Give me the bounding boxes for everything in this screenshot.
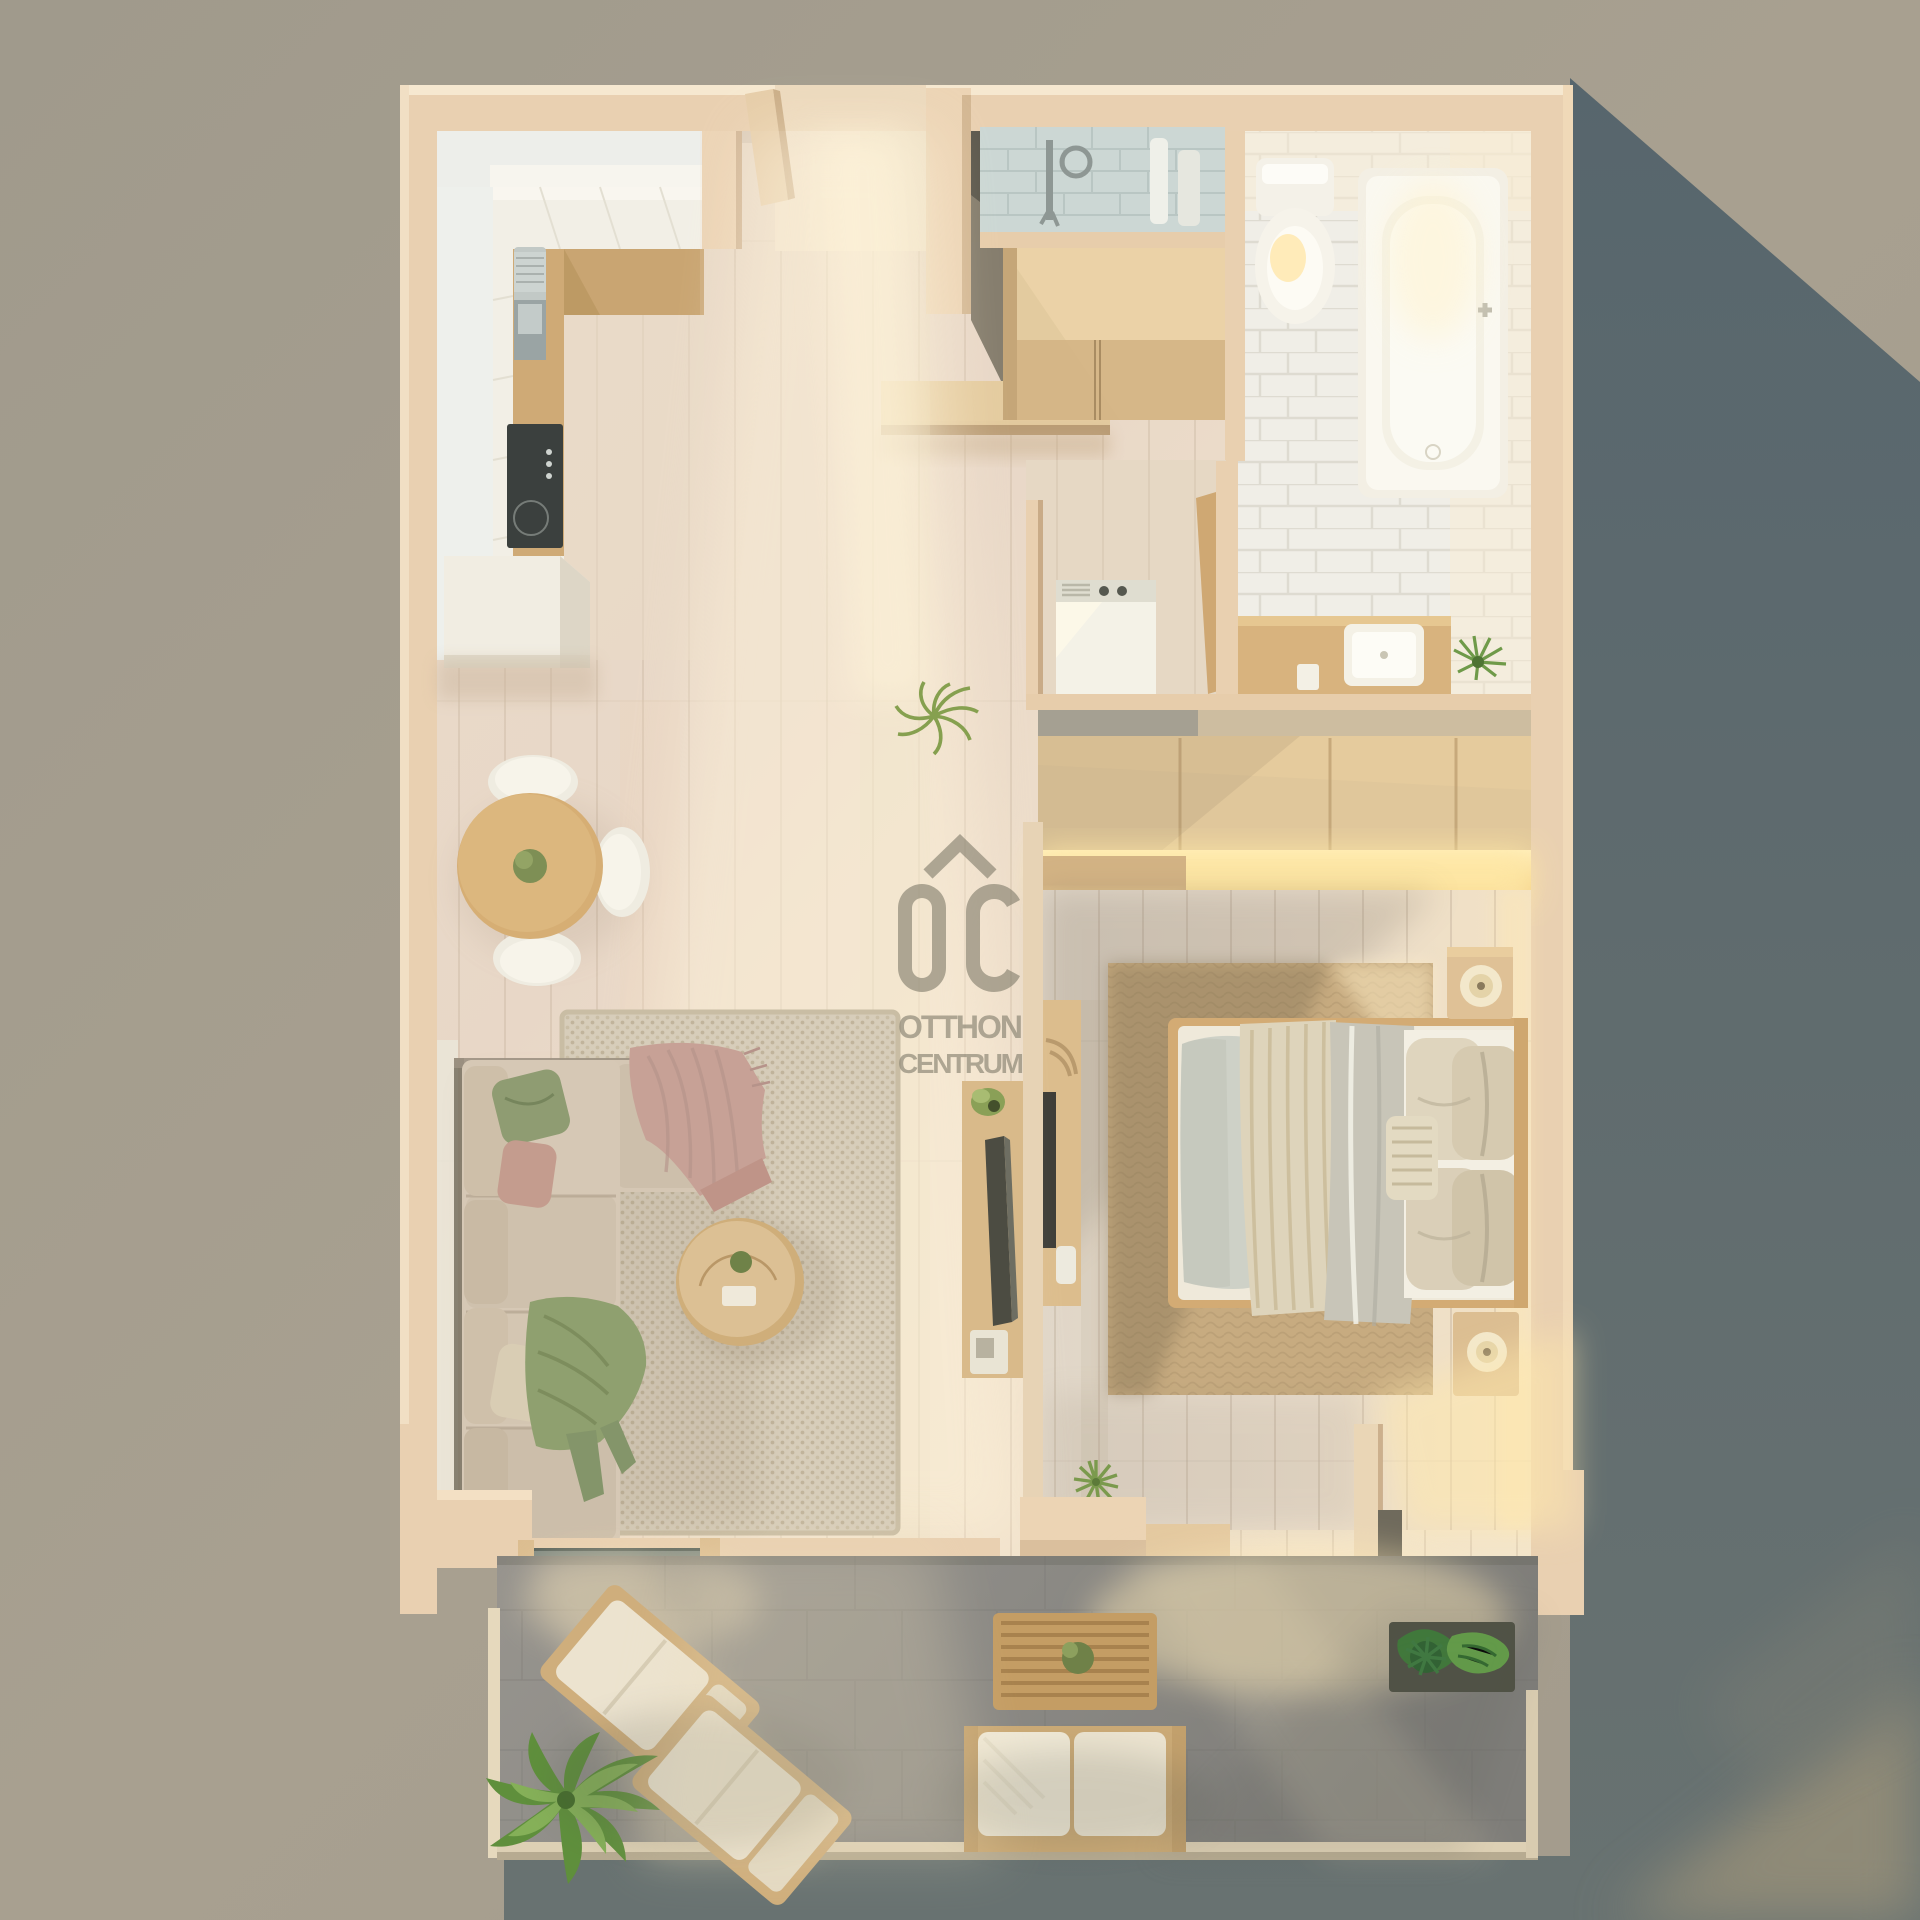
svg-text:CENTRUM: CENTRUM [898,1048,1025,1079]
svg-text:OTTHON: OTTHON [898,1009,1024,1045]
